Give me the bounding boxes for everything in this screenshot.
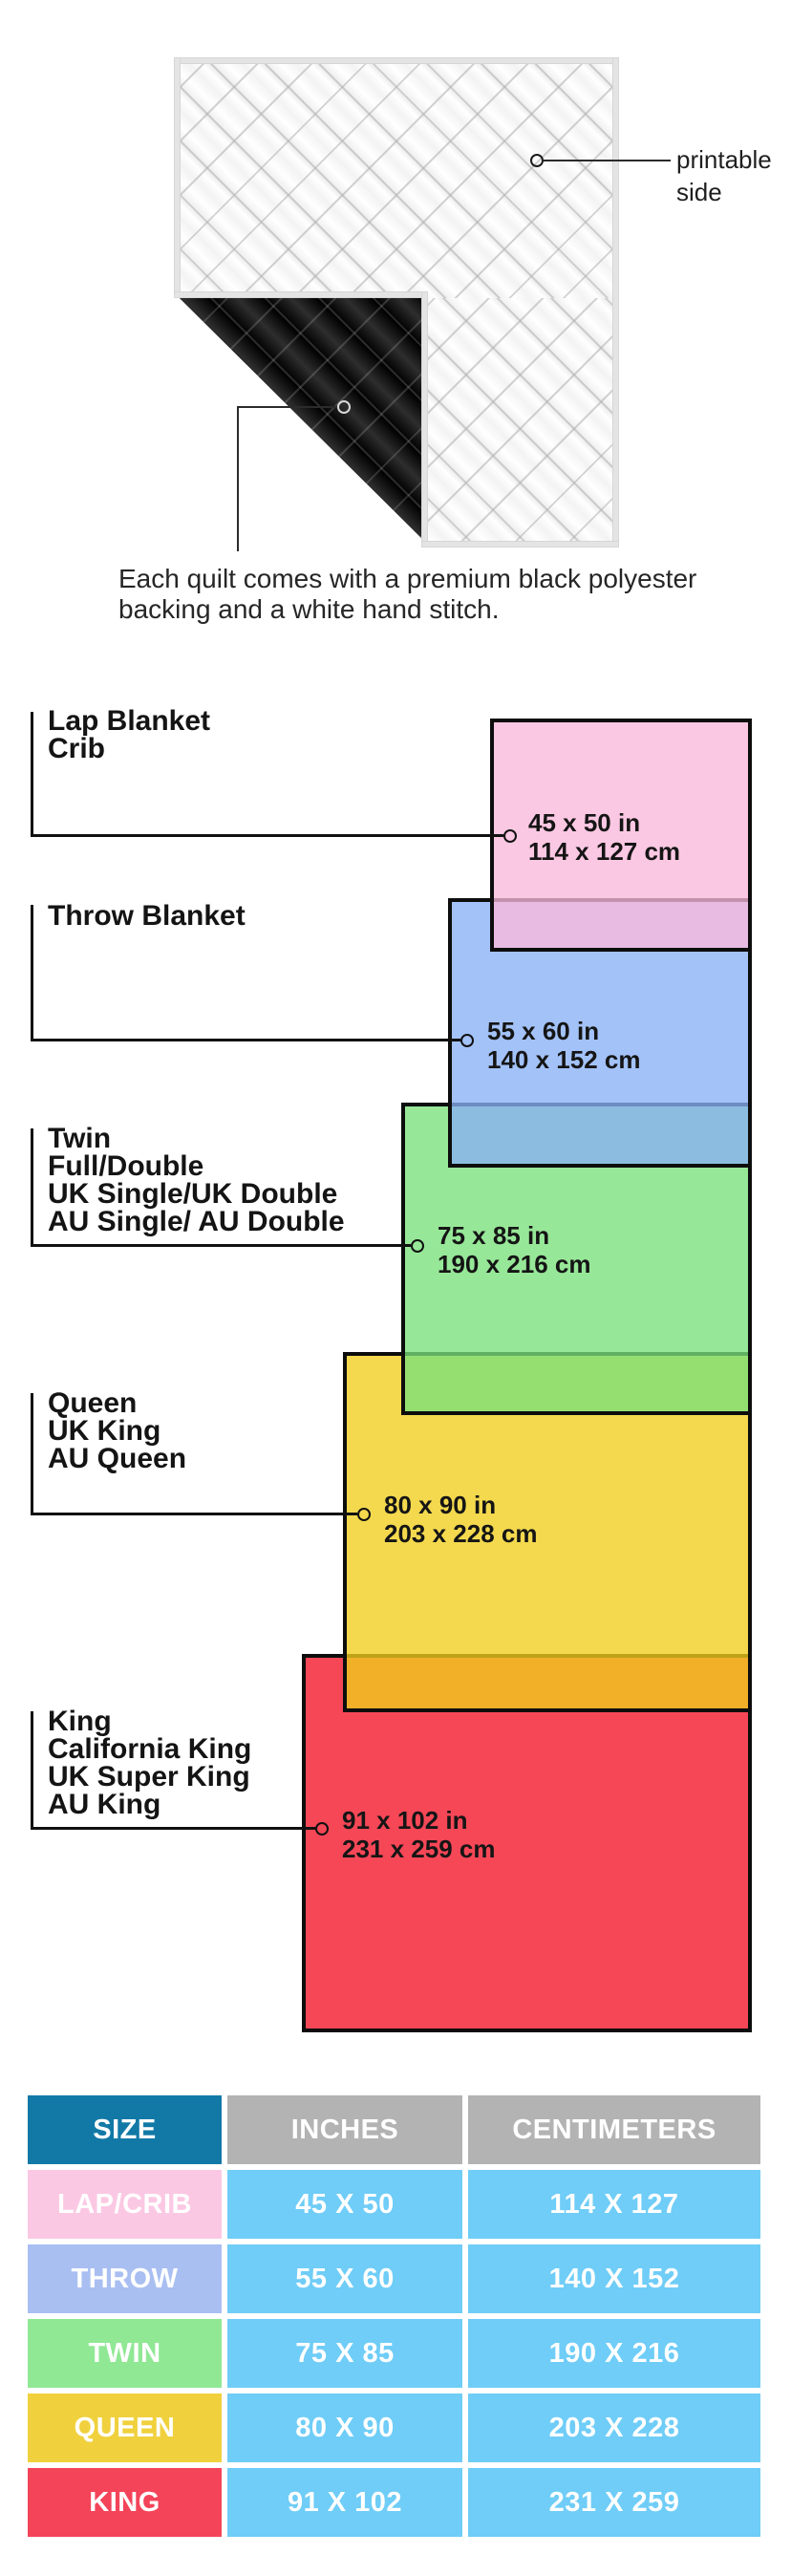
label-queen: Queen UK King AU Queen: [48, 1389, 186, 1472]
label-king-line3: UK Super King: [48, 1763, 251, 1791]
dims-king-inches: 91 x 102 in: [342, 1806, 495, 1835]
label-queen-line1: Queen: [48, 1389, 186, 1417]
quilt-binding-fold-horizontal: [174, 291, 428, 298]
table-row-queen-inches: 80 X 90: [227, 2394, 462, 2462]
size-table: SIZE INCHES CENTIMETERS LAP/CRIB 45 X 50…: [28, 2095, 760, 2537]
dims-throw: 55 x 60 in 140 x 152 cm: [487, 1017, 640, 1074]
table-header-size: SIZE: [28, 2095, 222, 2164]
label-king: King California King UK Super King AU Ki…: [48, 1707, 251, 1818]
quilt-binding-top: [174, 57, 619, 64]
printable-side-label: printable side: [676, 143, 776, 208]
table-row-throw-size: THROW: [28, 2244, 222, 2313]
leader-lap-dot-icon: [503, 829, 517, 843]
label-lap-line1: Lap Blanket: [48, 707, 210, 735]
label-lap-line2: Crib: [48, 735, 210, 762]
table-row-lap-inches: 45 X 50: [227, 2170, 462, 2239]
dims-lap-crib-cm: 114 x 127 cm: [528, 837, 680, 866]
dims-twin-inches: 75 x 85 in: [438, 1221, 590, 1250]
dims-queen-cm: 203 x 228 cm: [384, 1519, 537, 1548]
dims-lap-crib-inches: 45 x 50 in: [528, 808, 680, 837]
label-queen-line2: UK King: [48, 1417, 186, 1445]
dims-king: 91 x 102 in 231 x 259 cm: [342, 1806, 495, 1863]
label-lap-crib: Lap Blanket Crib: [48, 707, 210, 762]
dims-king-cm: 231 x 259 cm: [342, 1835, 495, 1863]
quilt-front-column: [421, 298, 619, 547]
label-twin-line4: AU Single/ AU Double: [48, 1208, 345, 1235]
label-twin: Twin Full/Double UK Single/UK Double AU …: [48, 1125, 345, 1235]
printable-side-leader-line: [544, 160, 671, 161]
table-row-king-inches: 91 X 102: [227, 2468, 462, 2537]
dims-queen: 80 x 90 in 203 x 228 cm: [384, 1491, 537, 1548]
table-row-twin-inches: 75 X 85: [227, 2319, 462, 2388]
quilt-front-upper: [174, 57, 619, 298]
quilt-binding-left: [174, 57, 181, 298]
table-row-king-cm: 231 X 259: [468, 2468, 760, 2537]
label-twin-line2: Full/Double: [48, 1152, 345, 1180]
table-row-lap-size: LAP/CRIB: [28, 2170, 222, 2239]
label-king-line2: California King: [48, 1735, 251, 1763]
leader-king-horizontal: [31, 1827, 315, 1830]
table-row-throw-inches: 55 X 60: [227, 2244, 462, 2313]
table-header-centimeters: CENTIMETERS: [468, 2095, 760, 2164]
quilt-binding-bottom: [421, 541, 619, 547]
leader-twin-dot-icon: [411, 1239, 424, 1253]
table-row-queen-cm: 203 X 228: [468, 2394, 760, 2462]
label-king-line4: AU King: [48, 1791, 251, 1818]
quilt-binding-right: [612, 57, 619, 547]
table-row-twin-cm: 190 X 216: [468, 2319, 760, 2388]
backing-leader-line-horizontal: [237, 406, 337, 408]
leader-king-vertical: [31, 1711, 33, 1830]
table-header-inches: INCHES: [227, 2095, 462, 2164]
label-twin-line1: Twin: [48, 1125, 345, 1152]
leader-queen-dot-icon: [357, 1508, 371, 1521]
table-row-lap-cm: 114 X 127: [468, 2170, 760, 2239]
printable-side-marker-icon: [530, 154, 544, 167]
leader-throw-horizontal: [31, 1039, 460, 1041]
label-king-line1: King: [48, 1707, 251, 1735]
dims-queen-inches: 80 x 90 in: [384, 1491, 537, 1519]
table-row-throw-cm: 140 X 152: [468, 2244, 760, 2313]
quilt-backing-triangle: [180, 298, 421, 538]
backing-leader-line-vertical: [237, 406, 239, 551]
label-queen-line3: AU Queen: [48, 1445, 186, 1472]
leader-throw-dot-icon: [460, 1034, 474, 1047]
quilt-caption: Each quilt comes with a premium black po…: [118, 564, 711, 625]
label-twin-line3: UK Single/UK Double: [48, 1180, 345, 1208]
table-row-twin-size: TWIN: [28, 2319, 222, 2388]
infographic-root: printable side Each quilt comes with a p…: [0, 0, 791, 2576]
leader-queen-horizontal: [31, 1513, 357, 1515]
leader-twin-vertical: [31, 1128, 33, 1247]
dims-twin: 75 x 85 in 190 x 216 cm: [438, 1221, 590, 1278]
dims-throw-inches: 55 x 60 in: [487, 1017, 640, 1045]
quilt-binding-fold-vertical: [421, 291, 428, 547]
leader-king-dot-icon: [315, 1822, 329, 1835]
leader-twin-horizontal: [31, 1244, 411, 1247]
dims-lap-crib: 45 x 50 in 114 x 127 cm: [528, 808, 680, 866]
backing-marker-icon: [337, 400, 351, 414]
table-row-king-size: KING: [28, 2468, 222, 2537]
label-throw: Throw Blanket: [48, 902, 246, 930]
label-throw-line1: Throw Blanket: [48, 902, 246, 930]
leader-throw-vertical: [31, 905, 33, 1041]
leader-lap-vertical: [31, 712, 33, 837]
table-row-queen-size: QUEEN: [28, 2394, 222, 2462]
dims-throw-cm: 140 x 152 cm: [487, 1045, 640, 1074]
dims-twin-cm: 190 x 216 cm: [438, 1250, 590, 1278]
leader-queen-vertical: [31, 1393, 33, 1515]
leader-lap-horizontal: [31, 834, 503, 837]
